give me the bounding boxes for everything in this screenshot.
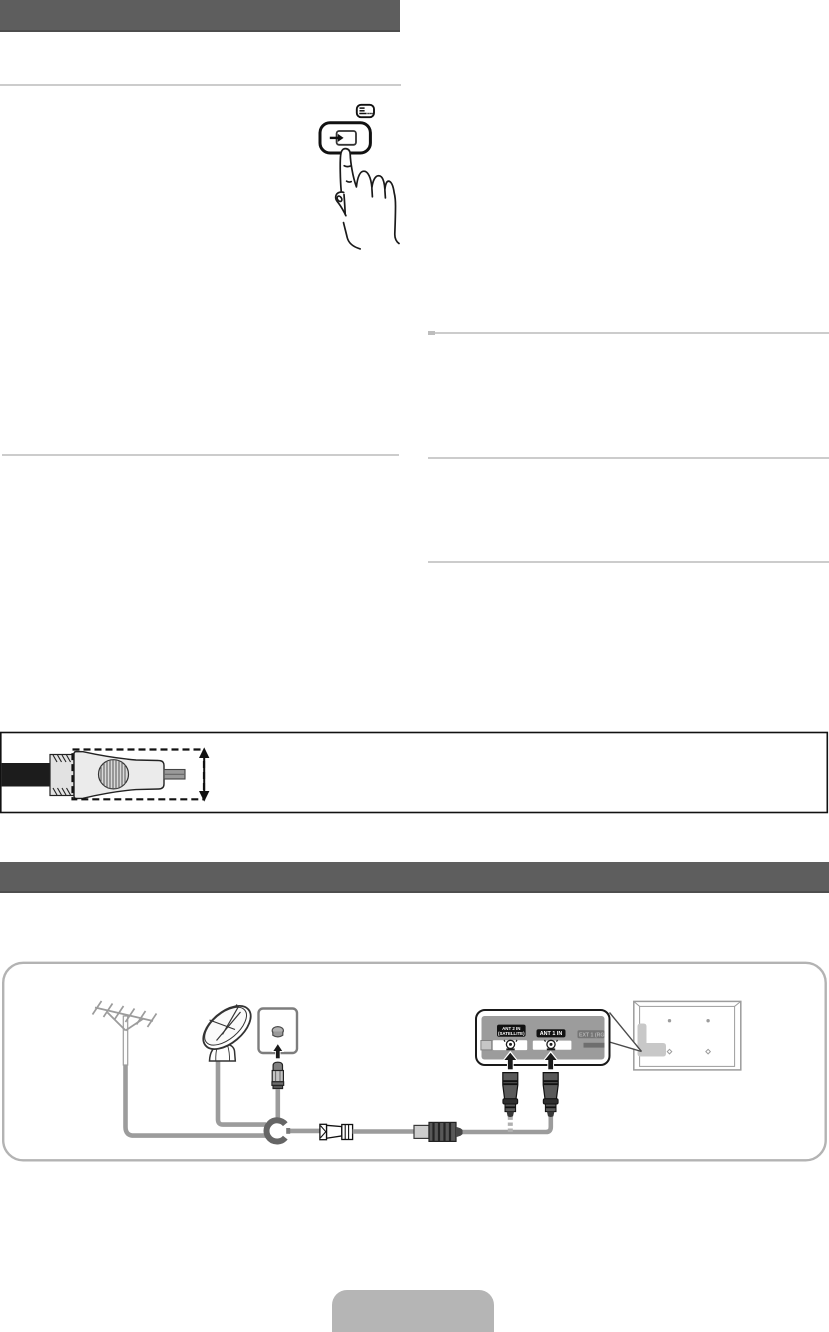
svg-text:EXT 1 (RG: EXT 1 (RG [579, 1032, 604, 1038]
svg-text:ANT 1 IN: ANT 1 IN [540, 1031, 563, 1037]
svg-text:(SATELLITE): (SATELLITE) [498, 1031, 525, 1036]
